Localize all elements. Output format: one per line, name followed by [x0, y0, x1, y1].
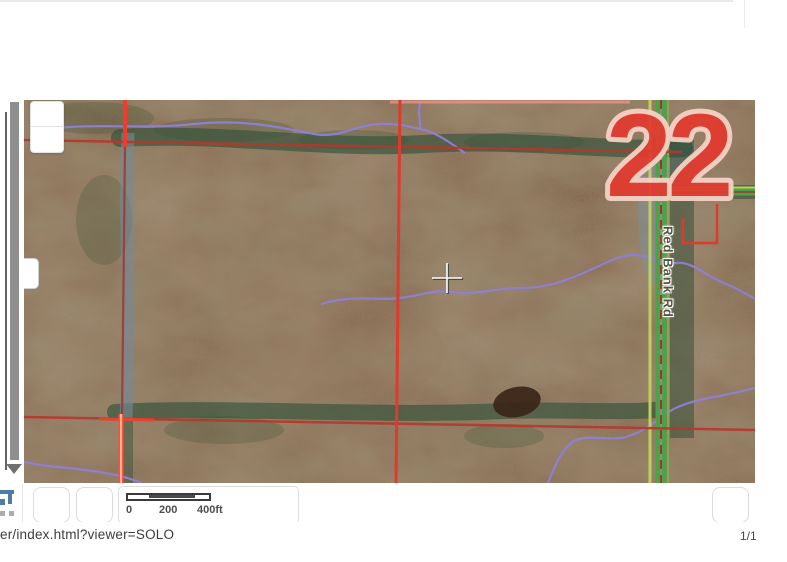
- map-viewer-window: 22 Red Bank Rd: [0, 0, 787, 562]
- west-boundary-creek-band: [126, 133, 128, 418]
- top-window-border: [0, 0, 733, 2]
- panel-collapse-tab[interactable]: [24, 258, 39, 289]
- scalebar-tick-start: 0: [126, 504, 132, 516]
- map-canvas[interactable]: 22 Red Bank Rd: [24, 100, 755, 483]
- top-right-divider: [744, 0, 745, 28]
- toolbar-button-1[interactable]: [33, 487, 70, 523]
- scalebar-tick-end: 400ft: [197, 504, 223, 516]
- bottom-toolbar: 0 200 400ft: [0, 483, 787, 525]
- scalebar-graphic: [126, 493, 211, 501]
- zoom-in-button[interactable]: [31, 102, 63, 126]
- panel-edge-line: [5, 112, 7, 470]
- map-artwork: 22: [24, 100, 755, 483]
- vertical-scrollbar-thumb[interactable]: [10, 102, 19, 460]
- zoom-control: [30, 101, 64, 153]
- toolbar-separator: [22, 484, 23, 524]
- status-bar: er/index.html?viewer=SOLO 1/1: [0, 522, 787, 548]
- toolbar-button-right[interactable]: [712, 487, 749, 523]
- section-number-label: 22: [606, 100, 729, 222]
- scalebar-panel: 0 200 400ft: [118, 486, 299, 524]
- scalebar-fill: [149, 495, 195, 498]
- zoom-out-button[interactable]: [31, 127, 63, 151]
- toolbar-button-2[interactable]: [76, 487, 113, 523]
- scalebar-tick-middle: 200: [159, 504, 177, 516]
- left-scrollbar-region: [0, 100, 24, 483]
- page-indicator: 1/1: [740, 529, 757, 543]
- status-url-text: er/index.html?viewer=SOLO: [0, 527, 174, 542]
- road-name-label: Red Bank Rd: [661, 226, 676, 318]
- scrollbar-down-arrow-icon[interactable]: [6, 464, 22, 474]
- sitemap-icon[interactable]: [0, 487, 16, 519]
